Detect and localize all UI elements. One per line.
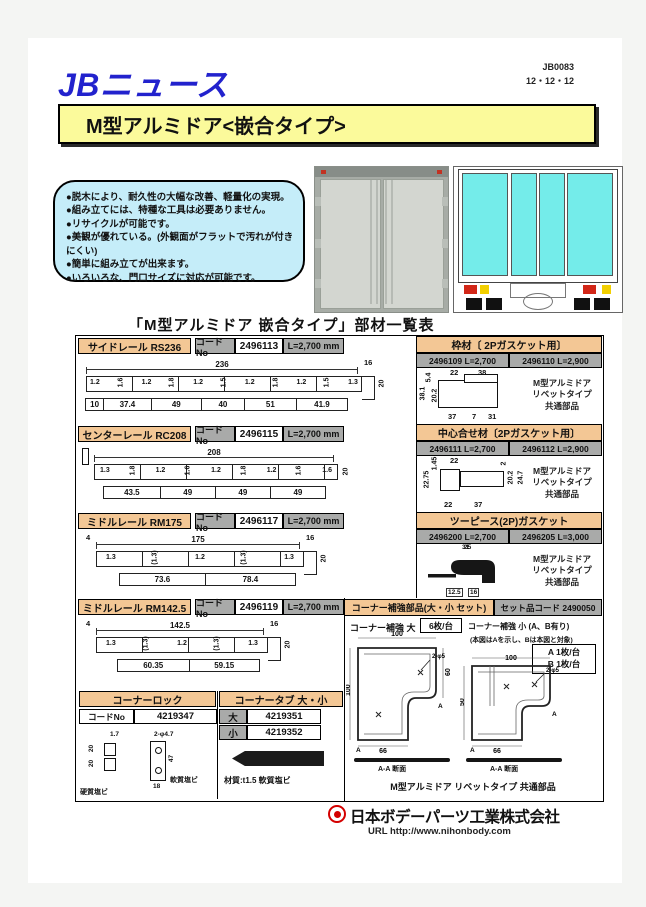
center-joint-code1: 2496111 L=2,700 [416, 441, 509, 456]
frame-drawing: 5.4 22 38 38.1 20.2 37 7 31 M型アルミドア リベット… [416, 368, 602, 424]
dim: 5.4 [425, 373, 432, 383]
dim: 31 [488, 412, 496, 421]
svg-text:A: A [470, 747, 475, 754]
bottom-dims: 10 37.4 49 40 51 41.9 [86, 398, 348, 411]
dim-line: 142.5 [96, 630, 264, 631]
corner-small-label: コーナー補強 小 (A、B有り) [468, 621, 569, 632]
dim: 16 [468, 588, 479, 597]
company-name: 日本ボデーパーツ工業株式会社 [350, 805, 560, 827]
dim-cell: 51 [244, 398, 297, 411]
diagram-left-panel [462, 173, 508, 276]
dim: 22 [450, 368, 458, 377]
dim: 1.7 [110, 731, 119, 738]
company-logo-icon [328, 805, 346, 823]
feature-item: ●組み立てには、特種な工具は必要ありません。 [66, 204, 298, 217]
corner-small-note: (本図はAを示し、Bは本図と対象) [470, 634, 573, 644]
wheel [466, 298, 482, 310]
dim: 12.5 [446, 588, 463, 597]
dim: 2-φ4.7 [154, 731, 173, 738]
wheel [594, 298, 610, 310]
corner-lock-title: コーナーロック [79, 691, 216, 707]
dim-thickness: (1.3) [152, 550, 159, 564]
dim-left: 4 [86, 619, 90, 628]
hinge [442, 279, 448, 288]
section-label: A-A 断面 [490, 764, 518, 774]
corner-large-qty: 6枚/台 [420, 618, 462, 633]
dim-height: 20 [342, 468, 349, 476]
dim-thickness: 1.3 [100, 467, 110, 474]
hinge [315, 239, 321, 248]
dim-cell: 49 [270, 486, 326, 499]
gasket-code1: 2496200 L=2,700 [416, 529, 509, 544]
part-length: L=2,700 mm [283, 599, 344, 615]
gasket-drawing: 31 25 12.5 16 M型アルミドア リベットタイプ 共通部品 [416, 544, 602, 598]
dim-thickness: (1.3) [143, 636, 150, 650]
dim-cell: 49 [151, 398, 202, 411]
rail-drawing-rs236: 236 16 1.21.61.21.81.21.51.21.81.21.51.3… [80, 358, 410, 422]
truck-rear-photo [314, 166, 449, 313]
tail-lamp-red [583, 285, 596, 294]
gasket-code2: 2496205 L=3,000 [509, 529, 602, 544]
dim-thickness: 1.2 [193, 379, 203, 386]
feature-item: ●いろいろな、門口サイズに対応が可能です。 [66, 272, 298, 285]
feature-item: ●脱木により、耐久性の大幅な改善、軽量化の実現。 [66, 191, 298, 204]
wheel [574, 298, 590, 310]
dim: 22 [444, 500, 452, 509]
svg-text:66: 66 [379, 748, 387, 754]
dim-thickness: 1.2 [245, 379, 255, 386]
dim-thickness: 1.3 [284, 554, 294, 561]
part-code: 2496117 [235, 513, 283, 529]
title-banner-text: M型アルミドア<嵌合タイプ> [86, 110, 346, 139]
thickness-row: 1.3(1.3)1.2(1.3)1.3 [106, 554, 294, 561]
part-name: ミドルレール RM175 [78, 513, 191, 529]
corner-lock-tab-section: コーナーロック コードNo 4219347 1.7 2-φ4.7 20 20 4… [76, 691, 344, 801]
title-banner: M型アルミドア<嵌合タイプ> [58, 104, 596, 144]
corner-bracket-large: 100 100 66 60 2-φ5 A A [346, 632, 456, 754]
part-length: L=2,700 mm [283, 338, 344, 354]
thickness-row: 1.31.81.21.61.21.81.21.61.6 [100, 467, 332, 474]
dim-cell: 78.4 [205, 573, 296, 586]
lock-rod [385, 180, 387, 304]
dim-thickness: 1.3 [106, 640, 116, 647]
wheel [486, 298, 502, 310]
thickness-row: 1.21.61.21.81.21.51.21.81.21.51.3 [90, 379, 358, 386]
tail-lamp-red [464, 285, 477, 294]
gasket-profile [426, 546, 518, 586]
svg-text:A: A [552, 711, 557, 718]
dim-thickness: 1.8 [169, 378, 176, 388]
dim-thickness: (1.3) [214, 636, 221, 650]
corner-set-note: M型アルミドア リベットタイプ 共通部品 [344, 780, 602, 793]
part-name: サイドレール RS236 [78, 338, 191, 354]
hole [155, 767, 162, 774]
lock-rod [391, 180, 393, 304]
dim-width: 175 [96, 535, 300, 544]
feature-list: ●脱木により、耐久性の大幅な改善、軽量化の実現。 ●組み立てには、特種な工具は必… [53, 180, 305, 282]
diagram-center-left-door [511, 173, 537, 276]
frame-profile [438, 380, 498, 408]
dim-thickness: 1.2 [177, 640, 187, 647]
dim-thickness: 1.3 [348, 379, 358, 386]
dim-thickness: 1.2 [90, 379, 100, 386]
rail-end-hook [362, 376, 375, 400]
dim-height: 20 [284, 641, 291, 649]
dim-thickness: 1.2 [156, 467, 166, 474]
dim-line: 208 [94, 457, 334, 458]
bottom-dims: 43.5 49 49 49 [104, 486, 326, 499]
corner-set-code: セット品コード 2490050 [494, 599, 602, 616]
code-no-label: コードNo [195, 513, 235, 529]
dim-thickness: 1.3 [106, 554, 116, 561]
doc-code: JB0083 [458, 60, 574, 74]
code-no-label: コードNo [79, 709, 134, 724]
svg-text:66: 66 [493, 748, 501, 754]
dim-thickness: (1.3) [241, 550, 248, 564]
dim: 2 [500, 462, 507, 466]
dim-thickness: 1.6 [296, 466, 303, 476]
lock-profile [104, 743, 116, 756]
diagram-center-right-door [539, 173, 565, 276]
dim-thickness: 1.6 [322, 467, 332, 474]
corner-bracket-small: 100 50 66 2-φ5 A A [460, 654, 570, 754]
part-length: L=2,700 mm [283, 426, 344, 442]
axle-housing [523, 293, 553, 310]
document-page: JBニュース JB0083 12・12・12 M型アルミドア<嵌合タイプ> ●脱… [28, 38, 622, 883]
section-view-large [354, 758, 450, 762]
feature-item: ●リサイクルが可能です。 [66, 218, 298, 231]
dim-width: 142.5 [96, 621, 264, 630]
part-code: 2496113 [235, 338, 283, 354]
dim-width: 236 [86, 360, 358, 369]
diagram-right-panel [567, 173, 613, 276]
tab-code: 4219352 [247, 725, 321, 740]
scanned-page-background: JBニュース JB0083 12・12・12 M型アルミドア<嵌合タイプ> ●脱… [0, 0, 646, 907]
rail-end-hook [304, 551, 317, 575]
hole [155, 747, 162, 754]
dim: 20.2 [507, 471, 514, 485]
dim-cell: 41.9 [296, 398, 348, 411]
dim-width: 208 [94, 448, 334, 457]
center-joint-code2: 2496112 L=2,900 [509, 441, 602, 456]
dim-right: 16 [306, 533, 314, 542]
corner-lock-code: 4219347 [134, 709, 217, 724]
dim-height: 20 [378, 380, 385, 388]
truck-rear-diagram [453, 166, 623, 313]
code-no-label: コードNo [195, 338, 235, 354]
rail-drawing-rc208: 208 1.31.81.21.61.21.81.21.61.6 20 43.5 … [80, 446, 410, 508]
rail-drawing-rm142: 4 142.5 16 1.3(1.3)1.2(1.3)1.3 20 60.35 … [80, 619, 344, 685]
hinge [315, 197, 321, 206]
dim: 7 [472, 412, 476, 421]
dim-cell: 49 [160, 486, 216, 499]
dim-thickness: 1.2 [267, 467, 277, 474]
dim-left: 4 [86, 533, 90, 542]
rail-end-hook [82, 448, 89, 465]
section-view-small [466, 758, 562, 762]
sub-divider [217, 691, 218, 799]
dim-cell: 49 [215, 486, 271, 499]
svg-text:60: 60 [445, 668, 452, 676]
dim-thickness: 1.8 [129, 466, 136, 476]
dim-cell: 40 [201, 398, 245, 411]
bottom-dims: 60.35 59.15 [118, 659, 260, 672]
dim-thickness: 1.2 [211, 467, 221, 474]
feature-item: ●美観が優れている。(外観面がフラットで汚れが付きにくい) [66, 231, 298, 258]
code-no-label: コードNo [195, 599, 235, 615]
section-label: A-A 断面 [378, 764, 406, 774]
corner-set-section: コーナー補強部品(大・小 セット) セット品コード 2490050 コーナー補強… [344, 598, 602, 801]
dim-thickness: 1.8 [272, 378, 279, 388]
dim-thickness: 1.3 [248, 640, 258, 647]
dim-thickness: 1.6 [185, 466, 192, 476]
doc-meta: JB0083 12・12・12 [458, 60, 574, 89]
thickness-row: 1.3(1.3)1.2(1.3)1.3 [106, 640, 258, 647]
dim-thickness: 1.5 [324, 378, 331, 388]
parts-table: サイドレール RS236 コードNo 2496113 L=2,700 mm 23… [75, 335, 604, 802]
dim-thickness: 1.8 [240, 466, 247, 476]
svg-text:100: 100 [391, 632, 403, 638]
dim-thickness: 1.6 [117, 378, 124, 388]
common-parts-note: M型アルミドア リベットタイプ 共通部品 [524, 378, 600, 412]
dim-thickness: 1.2 [297, 379, 307, 386]
svg-text:50: 50 [460, 698, 466, 706]
gasket-title: ツーピース(2P)ガスケット [416, 512, 602, 529]
dim-thickness: 1.2 [142, 379, 152, 386]
dim: 22.75 [423, 471, 430, 489]
part-name: センターレール RC208 [78, 426, 191, 442]
svg-text:2-φ5: 2-φ5 [432, 654, 446, 660]
joint-profile [460, 471, 504, 487]
parts-list-title: 「M型アルミドア 嵌合タイプ」部材一覧表 [128, 314, 435, 335]
hinge [442, 239, 448, 248]
frame-title: 枠材〔 2Pガスケット用〕 [416, 336, 602, 353]
center-joint-drawing: 1.45 22 2 22.75 20.2 24.7 22 37 M型アルミドア … [416, 456, 602, 512]
corner-tab-title: コーナータブ 大・小 [219, 691, 343, 707]
material-label: 硬質塩ビ [80, 787, 108, 797]
rail-end-hook [268, 637, 281, 661]
feature-item: ●簡単に組み立てが出来ます。 [66, 258, 298, 271]
dim: 37 [474, 500, 482, 509]
tab-code: 4219351 [247, 709, 321, 724]
dim-right: 16 [270, 619, 278, 628]
dim: 47 [168, 755, 175, 762]
common-parts-note: M型アルミドア リベットタイプ 共通部品 [524, 554, 600, 588]
frame-code2: 2496110 L=2,900 [509, 353, 602, 368]
dim-cell: 73.6 [119, 573, 206, 586]
marker-lamp [437, 170, 442, 174]
dim: 20.2 [431, 389, 438, 403]
frame-profile-step [464, 374, 498, 383]
material-label: 軟質塩ビ [170, 775, 198, 785]
dim-line: 236 [86, 369, 358, 370]
lock-rod [376, 180, 378, 304]
dim-cell: 59.15 [189, 659, 261, 672]
company-url: URL http://www.nihonbody.com [368, 826, 511, 837]
marker-lamp [321, 170, 326, 174]
lock-rod [370, 180, 372, 304]
common-parts-note: M型アルミドア リベットタイプ 共通部品 [524, 466, 600, 500]
center-joint-title: 中心合せ材〔2Pガスケット用〕 [416, 424, 602, 441]
dim: 18 [153, 783, 160, 790]
rail-drawing-rm175: 4 175 16 1.3(1.3)1.2(1.3)1.3 20 73.6 78.… [80, 533, 410, 595]
dim: 1.45 [431, 457, 438, 471]
bottom-dims: 73.6 78.4 [120, 573, 296, 586]
code-no-label: コードNo [195, 426, 235, 442]
dim-line: 175 [96, 544, 300, 545]
lock-profile [104, 758, 116, 771]
hinge [442, 197, 448, 206]
joint-profile [440, 469, 460, 491]
svg-text:100: 100 [346, 684, 352, 696]
photo-top-frame [315, 167, 448, 177]
tab-material: 材質:t1.5 軟質塩ビ [224, 775, 291, 786]
part-code: 2496119 [235, 599, 283, 615]
doc-date: 12・12・12 [458, 74, 574, 88]
tail-lamp-yellow [480, 285, 489, 294]
part-code: 2496115 [235, 426, 283, 442]
dim-cell: 60.35 [117, 659, 190, 672]
hinge [315, 279, 321, 288]
tab-shape [232, 751, 324, 766]
part-length: L=2,700 mm [283, 513, 344, 529]
dim: 20 [88, 745, 95, 752]
svg-text:A: A [438, 703, 443, 710]
dim: 20 [88, 760, 95, 767]
svg-text:A: A [356, 747, 361, 754]
dim: 22 [450, 456, 458, 465]
tail-lamp-yellow [602, 285, 611, 294]
dim-cell: 43.5 [103, 486, 161, 499]
newsletter-logo: JBニュース [58, 60, 228, 106]
frame-code1: 2496109 L=2,700 [416, 353, 509, 368]
svg-text:2-φ5: 2-φ5 [546, 668, 560, 674]
dim: 38.1 [419, 387, 426, 401]
dim-height: 20 [320, 555, 327, 563]
dim-thickness: 1.2 [195, 554, 205, 561]
svg-text:100: 100 [505, 655, 517, 662]
dim-cell: 37.4 [103, 398, 151, 411]
part-name: ミドルレール RM142.5 [78, 599, 191, 615]
corner-set-title: コーナー補強部品(大・小 セット) [344, 599, 494, 616]
dim: 37 [448, 412, 456, 421]
dim-right: 16 [364, 358, 372, 367]
tab-size: 小 [219, 725, 247, 740]
dim-cell: 10 [85, 398, 104, 411]
tab-size: 大 [219, 709, 247, 724]
dim-thickness: 1.5 [220, 378, 227, 388]
